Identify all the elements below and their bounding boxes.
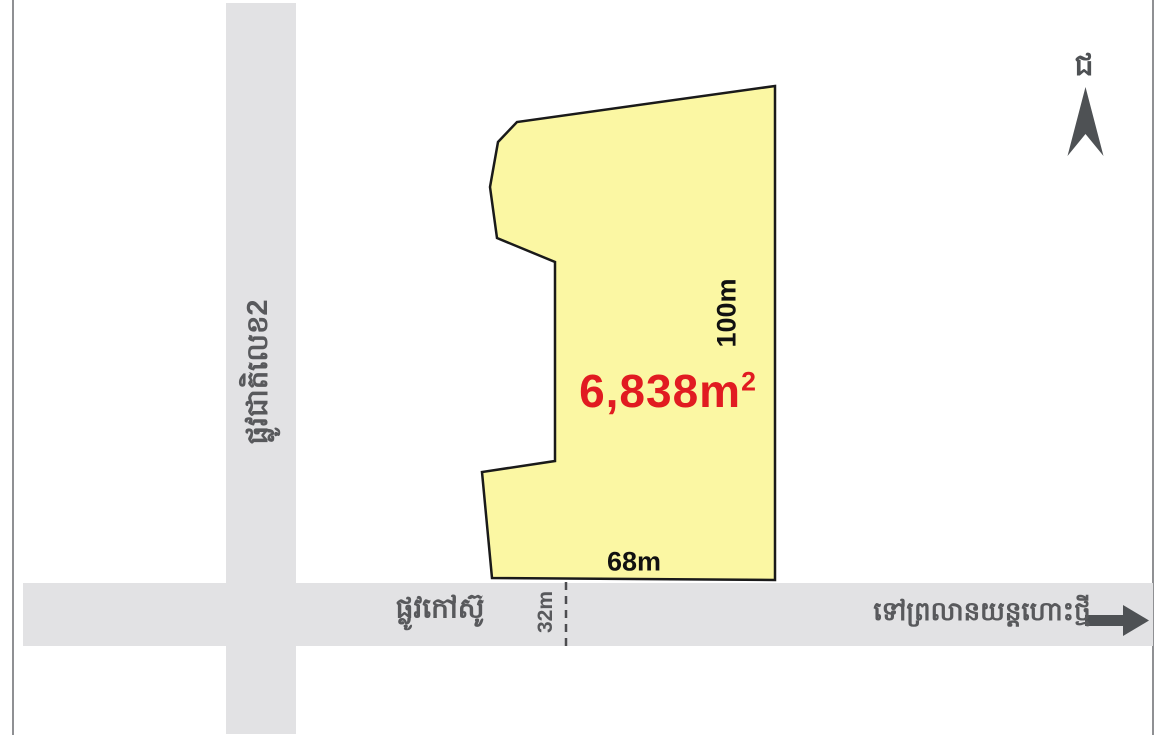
road-width-dimension-label: 32m [534,591,558,633]
right-side-dimension-label: 100m [712,278,743,347]
plot-area-superscript: 2 [741,367,757,397]
destination-arrow-icon [1085,605,1149,636]
national-road-2-label: ផ្លូវជាតិលេខ2 [240,300,282,445]
north-arrow-icon [1068,87,1104,156]
plot-area-label: 6,838m2 [579,364,757,418]
airport-destination-label: ទៅព្រលានយន្តហោះថ្មី [873,595,1090,633]
bottom-side-dimension-label: 68m [607,547,661,578]
north-compass-label: ជ [1074,46,1093,90]
plot-area-value: 6,838m [579,365,741,417]
land-plot-map: 6,838m2 100m 68m 32m ផ្លូវជាតិលេខ2 ផ្លូវ… [0,0,1170,738]
paved-road-label: ផ្លូវកៅស៊ូ [396,591,485,632]
